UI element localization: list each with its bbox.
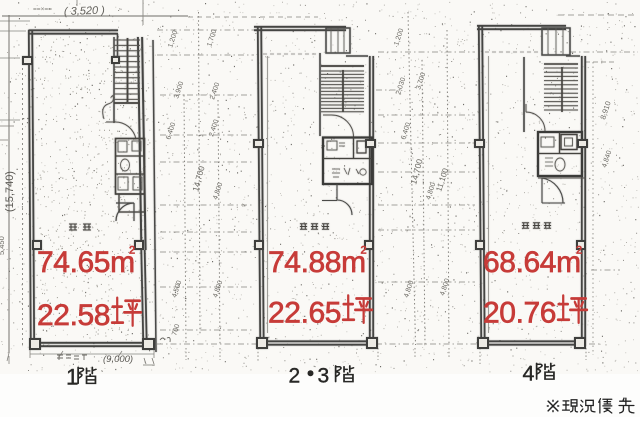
svg-text:5,450: 5,450 [0,236,6,255]
svg-text:(9,000): (9,000) [103,354,133,365]
svg-text:( 3,520 ): ( 3,520 ) [64,5,106,18]
svg-text:2: 2 [129,245,135,257]
svg-text:(15,740): (15,740) [4,171,16,212]
svg-text:2: 2 [361,245,367,257]
svg-text:1: 1 [66,365,79,390]
svg-text:74.88m: 74.88m [268,246,366,279]
svg-text:22.58: 22.58 [37,299,110,332]
svg-text:20.76: 20.76 [483,297,556,330]
svg-text:68.64m: 68.64m [483,246,581,279]
svg-text:==×==: ==×== [33,6,52,13]
svg-text:74.65m: 74.65m [37,246,135,279]
svg-text:4: 4 [523,362,535,386]
svg-text:3: 3 [318,365,330,388]
svg-text:22.65: 22.65 [268,297,341,330]
svg-text:2: 2 [576,245,582,257]
svg-text:2: 2 [289,365,301,388]
